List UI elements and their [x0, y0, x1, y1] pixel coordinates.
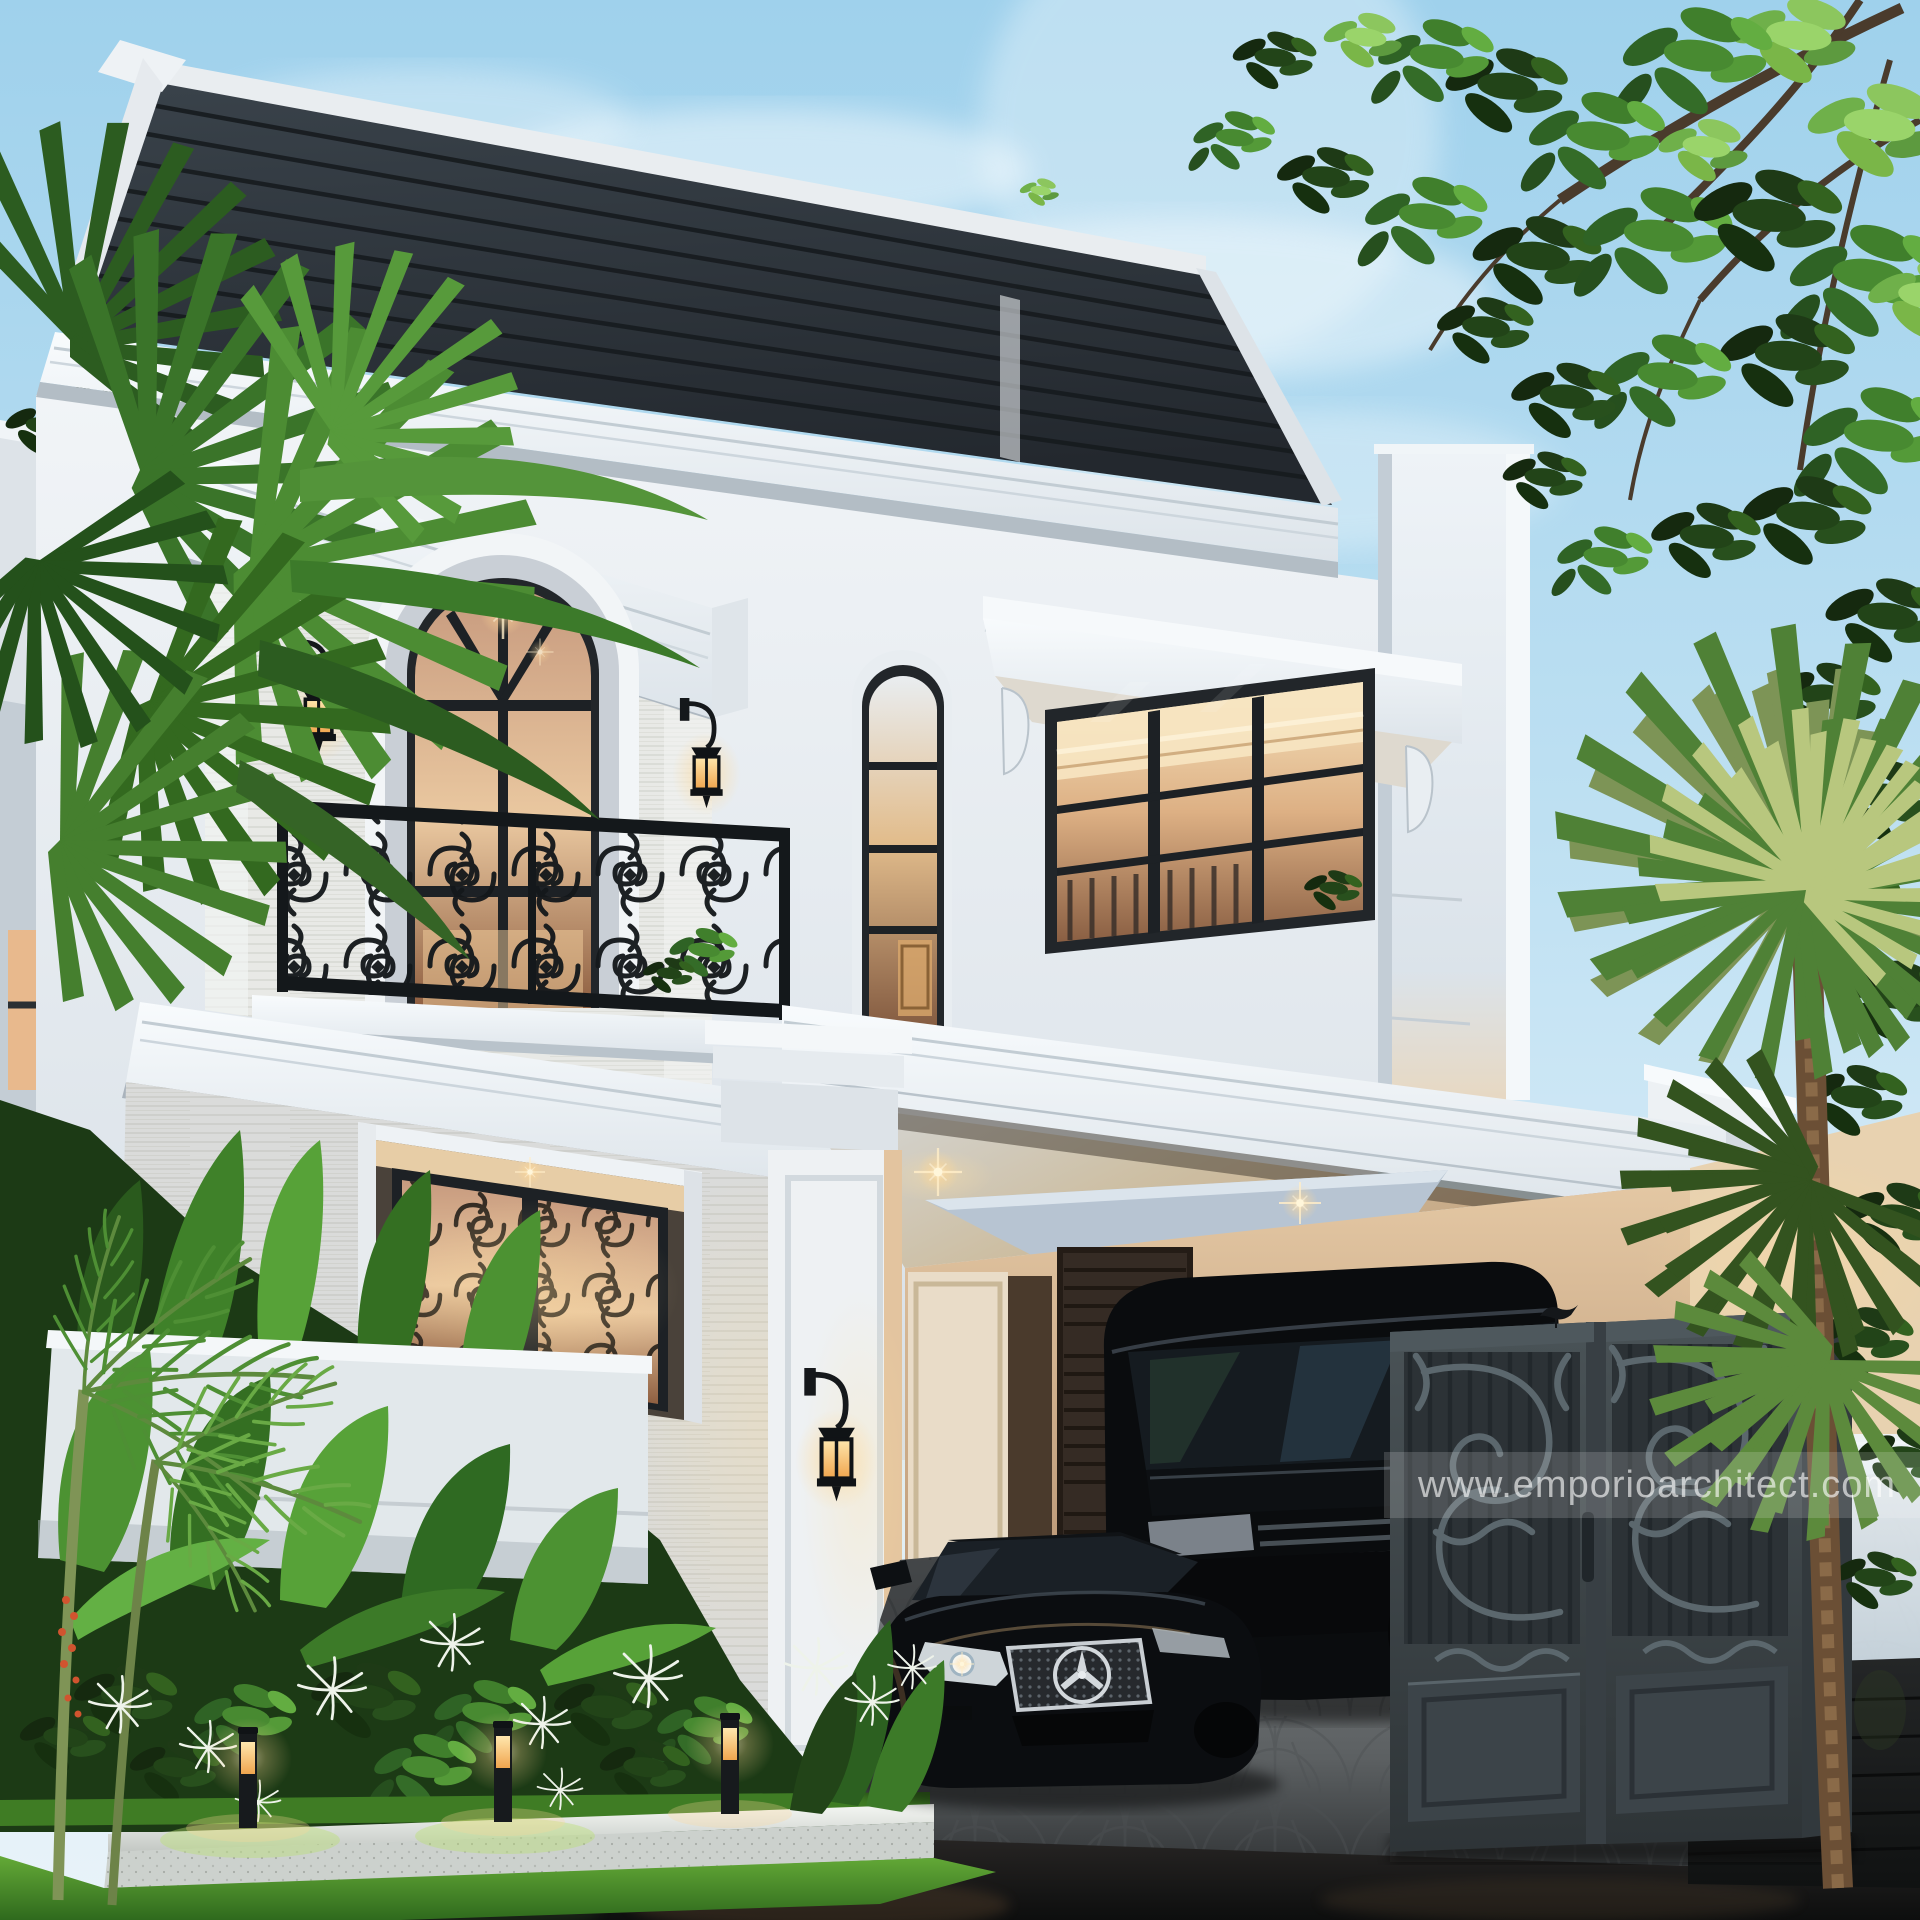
gate-handle [1582, 1512, 1594, 1582]
sedan-grille [1008, 1640, 1150, 1710]
narrow-arch-window [846, 650, 958, 1060]
render-canvas [0, 0, 1920, 1920]
right-window [1045, 664, 1375, 954]
watermark-url: www.emporioarchitect.com [1384, 1464, 1896, 1507]
gate-leaf-left [1390, 1322, 1594, 1852]
architectural-render-scene: www.emporioarchitect.com [0, 0, 1920, 1920]
watermark-band: www.emporioarchitect.com [1384, 1452, 1920, 1518]
